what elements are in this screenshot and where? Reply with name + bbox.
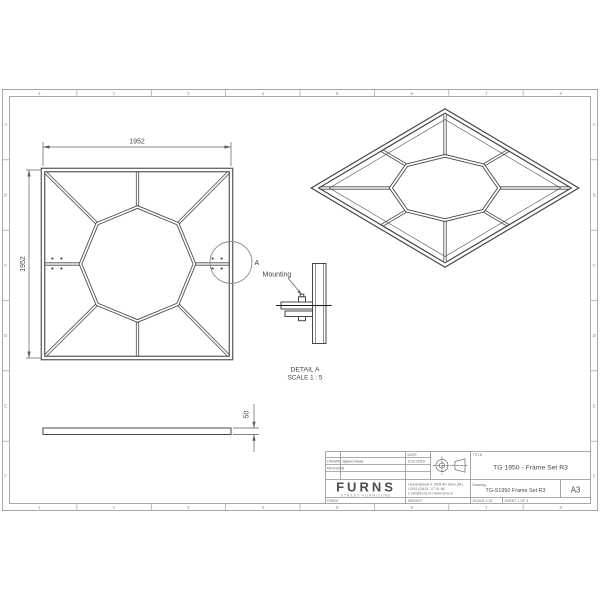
zone-label: F: [4, 474, 7, 479]
dimension-height-text: 1952: [20, 256, 27, 272]
side-view: 50: [43, 404, 259, 452]
zone-label: C: [4, 263, 8, 268]
address-line-2: t 0031 (0)413 - 27 41 68.: [408, 487, 445, 491]
detail-a-callout-label: A: [255, 260, 260, 267]
iso-spokes: [319, 115, 571, 261]
zone-label: D: [4, 333, 8, 338]
zone-label: 6: [411, 91, 414, 96]
drawing-number-label: Drawing.: [473, 483, 487, 487]
mounting-label: Mounting: [263, 272, 292, 279]
revision-label: REVISION: [327, 467, 345, 471]
zone-label: 3: [187, 91, 190, 96]
drawing-sheet: 1 2 3 4 5 6 7 8 1 2 3 4 5 6 7 8 A B C D …: [0, 0, 600, 600]
address-line-3: e info@furns.nl / www.furns.nl: [408, 491, 453, 495]
iso-octagon: [391, 156, 499, 220]
paper-size-value: A3: [571, 486, 581, 495]
date-label: DATE: [408, 453, 418, 457]
finish-label: FINISH: [327, 499, 339, 503]
sheet-number-value: SHEET 1 OF 4: [505, 499, 529, 503]
furns-logo: FURNS: [336, 480, 396, 495]
side-view-bar: [43, 428, 231, 435]
zone-label: 6: [411, 505, 414, 510]
detail-scale: SCALE 1 : 5: [288, 375, 323, 382]
detail-bracket-plate: [285, 311, 313, 317]
zone-label: 8: [560, 91, 563, 96]
zone-label: E: [593, 403, 596, 408]
dimension-width: 1952: [43, 139, 231, 167]
zone-label: 4: [262, 505, 265, 510]
date-value: 3-12-2019: [408, 460, 425, 464]
zone-label: B: [593, 193, 596, 198]
front-view-octagon: [81, 207, 195, 321]
zone-label: A: [593, 122, 596, 127]
zone-label: 1: [38, 91, 41, 96]
zone-label: 4: [262, 91, 265, 96]
zone-label: 5: [336, 91, 339, 96]
zone-label: D: [593, 333, 597, 338]
scale-value: SCALE:1:15: [473, 499, 493, 503]
detail-nut: [299, 317, 306, 321]
zone-label: 2: [113, 91, 116, 96]
projection-symbol-icon: [433, 457, 467, 475]
front-view: A 1952 1952: [20, 139, 260, 359]
zone-label: 5: [336, 505, 339, 510]
drawn-label: DRAWN: [327, 460, 341, 464]
title-block: DATE 3-12-2019 DRAWN Sjoerd Haas REVISIO…: [326, 452, 591, 504]
address-line-1: Liessentstraat 4, 5405 AD Uden (NL): [408, 482, 463, 486]
drawing-title: TG 1950 - Frame Set R3: [493, 465, 568, 472]
zone-label: F: [593, 474, 596, 479]
furns-logo-tagline: STREET FURNITURE: [340, 493, 391, 497]
zone-label: E: [4, 403, 7, 408]
detail-title: DETAIL A: [290, 367, 320, 374]
drawing-number-value: TG-S1950 Frame Set R3: [486, 488, 546, 494]
detail-bolt-head: [299, 297, 306, 302]
zone-label: A: [4, 122, 7, 127]
weight-label: WEIGHT:: [408, 499, 422, 503]
zone-label: 7: [485, 505, 488, 510]
zone-label: C: [593, 263, 597, 268]
dimension-height: 1952: [20, 170, 41, 358]
detail-view: Mounting DETAIL A SCALE 1 : 5: [263, 264, 332, 382]
front-view-spokes: [45, 172, 229, 356]
zone-label: 2: [113, 505, 116, 510]
dimension-width-text: 1952: [129, 139, 145, 146]
drawing-svg: 1 2 3 4 5 6 7 8 1 2 3 4 5 6 7 8 A B C D …: [0, 0, 600, 600]
zone-label: 1: [38, 505, 41, 510]
zone-label: 7: [485, 91, 488, 96]
detail-frame-tube: [313, 264, 327, 344]
drawn-by-value: Sjoerd Haas: [343, 460, 364, 464]
zone-label: 3: [187, 505, 190, 510]
isometric-view: [315, 111, 575, 265]
dimension-thickness: 50: [233, 404, 259, 452]
zone-label: B: [4, 193, 7, 198]
title-label: TITLE: [473, 453, 483, 457]
zone-label: 8: [560, 505, 563, 510]
dimension-thickness-text: 50: [244, 411, 251, 419]
